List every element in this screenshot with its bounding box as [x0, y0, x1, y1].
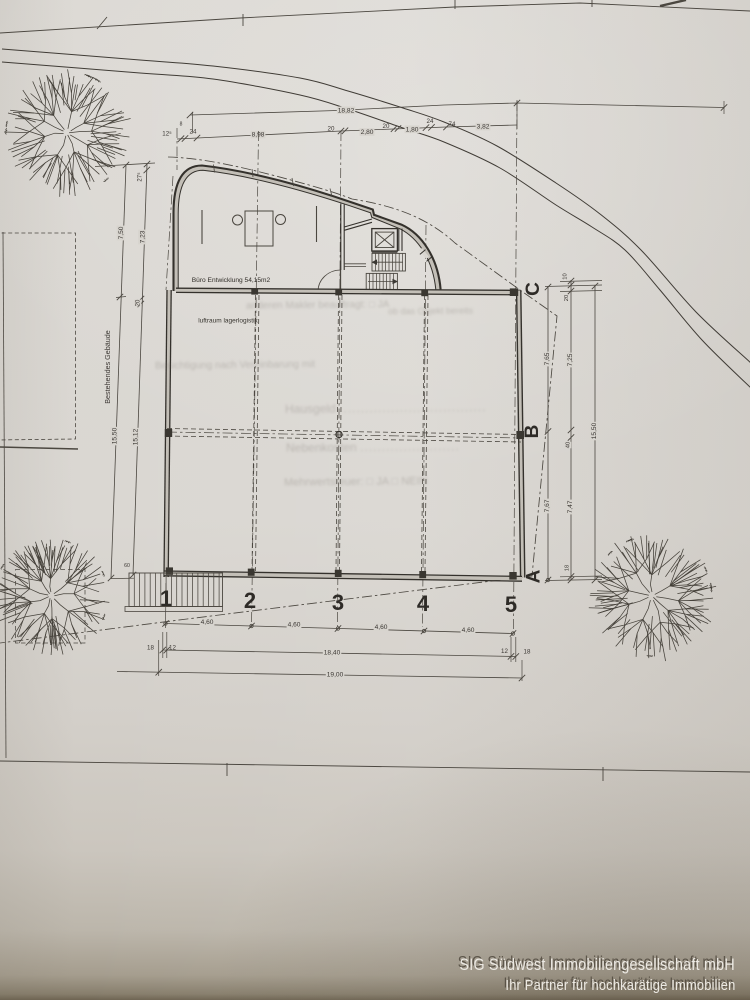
svg-text:24: 24 — [427, 118, 434, 125]
svg-text:20: 20 — [383, 123, 390, 130]
svg-text:7,50: 7,50 — [118, 226, 125, 239]
svg-text:A: A — [524, 569, 545, 583]
svg-text:7,67: 7,67 — [544, 499, 551, 512]
svg-text:15,50: 15,50 — [591, 422, 598, 439]
svg-text:7,47: 7,47 — [567, 500, 574, 513]
svg-text:luftraum lagerlogistik: luftraum lagerlogistik — [198, 318, 258, 325]
svg-text:27⁵: 27⁵ — [137, 172, 144, 182]
svg-text:B: B — [522, 425, 543, 439]
svg-text:40: 40 — [566, 442, 572, 448]
svg-text:10: 10 — [563, 273, 569, 279]
svg-text:7,23: 7,23 — [139, 230, 146, 243]
svg-text:5: 5 — [505, 592, 517, 617]
svg-text:C: C — [523, 282, 544, 296]
svg-text:3: 3 — [332, 590, 344, 615]
svg-text:12: 12 — [169, 645, 176, 652]
svg-text:18,82: 18,82 — [338, 107, 355, 114]
svg-text:4,60: 4,60 — [462, 627, 475, 634]
svg-text:20: 20 — [564, 295, 570, 301]
svg-text:18: 18 — [524, 649, 531, 656]
svg-text:1: 1 — [160, 586, 172, 611]
svg-text:19,00: 19,00 — [327, 671, 344, 678]
svg-text:2,80: 2,80 — [361, 129, 374, 136]
svg-text:15,50: 15,50 — [111, 427, 118, 444]
svg-text:Bestehendes Gebäude: Bestehendes Gebäude — [103, 330, 112, 404]
svg-text:74: 74 — [449, 121, 456, 128]
svg-text:1,80: 1,80 — [406, 126, 419, 133]
svg-text:12: 12 — [501, 648, 508, 655]
svg-text:2: 2 — [244, 588, 256, 613]
svg-text:18: 18 — [147, 645, 154, 652]
svg-text:8: 8 — [180, 121, 183, 127]
svg-text:20: 20 — [136, 299, 142, 306]
svg-text:15,12: 15,12 — [132, 428, 139, 445]
svg-text:3,82: 3,82 — [477, 124, 490, 131]
svg-text:7,25: 7,25 — [567, 353, 574, 366]
svg-text:12⁵: 12⁵ — [162, 131, 172, 138]
svg-text:20: 20 — [328, 126, 335, 133]
svg-text:60: 60 — [124, 563, 130, 569]
svg-text:4,60: 4,60 — [375, 624, 388, 631]
svg-text:24: 24 — [190, 129, 197, 136]
svg-text:18,40: 18,40 — [324, 650, 341, 657]
svg-text:7,65: 7,65 — [544, 352, 551, 365]
svg-text:4,60: 4,60 — [288, 621, 301, 628]
svg-text:18: 18 — [565, 565, 571, 571]
svg-text:Büro Entwicklung 54,15m2: Büro Entwicklung 54,15m2 — [192, 277, 271, 284]
svg-text:4: 4 — [417, 591, 430, 616]
svg-text:4,60: 4,60 — [201, 619, 214, 626]
